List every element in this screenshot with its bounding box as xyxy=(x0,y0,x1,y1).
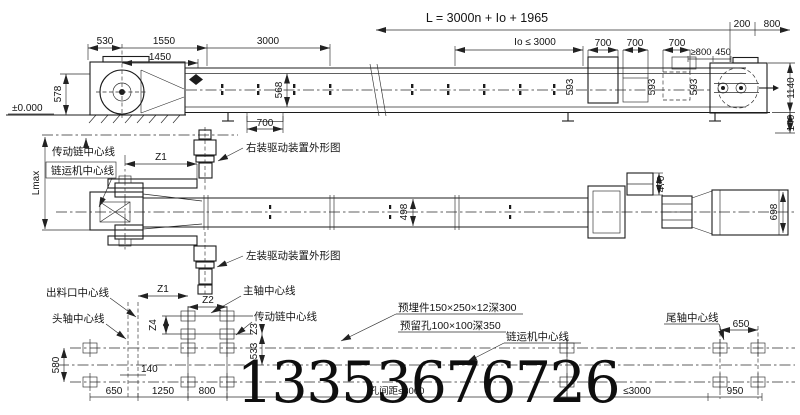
dim-1450: 1450 xyxy=(149,52,172,63)
dim-z1-plan: Z1 xyxy=(155,152,167,163)
dim-498: 498 xyxy=(399,203,410,220)
datum-level: ±0.000 xyxy=(12,103,43,114)
length-formula: L = 3000n + Io + 1965 xyxy=(426,11,548,25)
dim-z4: Z4 xyxy=(148,319,159,331)
label-left-drive: 左装驱动装置外形图 xyxy=(246,249,341,262)
dim-800: 800 xyxy=(764,19,781,30)
dim-z2: Z2 xyxy=(202,295,214,306)
dim-470: 470 xyxy=(656,175,667,192)
label-embedded-part: 预埋件150×250×12深300 xyxy=(398,302,517,314)
dim-700-c: 700 xyxy=(669,38,686,49)
dim-950: 950 xyxy=(727,386,744,397)
dim-700-a: 700 xyxy=(595,38,612,49)
label-outlet-centerline: 出料口中心线 xyxy=(46,286,109,299)
dim-580: 580 xyxy=(51,356,62,373)
label-right-drive: 右装驱动装置外形图 xyxy=(246,141,341,154)
dim-578: 578 xyxy=(53,85,64,102)
dim-z1-foundation: Z1 xyxy=(157,284,169,295)
dim-593-a: 593 xyxy=(565,78,576,95)
dim-450: 450 xyxy=(715,47,731,58)
dim-200: 200 xyxy=(734,19,751,30)
dim-593-b: 593 xyxy=(647,78,658,95)
dim-3000: 3000 xyxy=(257,36,280,47)
dim-le3000: ≤3000 xyxy=(623,386,651,397)
dim-140-foundation: 140 xyxy=(141,364,158,375)
dim-ge800: ≥800 xyxy=(690,47,711,58)
engineering-drawing: 530 1550 1450 3000 L = 3000n + Io + 1965… xyxy=(0,0,800,415)
label-conveyor-centerline-foundation: 链运机中心线 xyxy=(506,330,569,343)
dim-650-right: 650 xyxy=(733,319,750,330)
dim-z3: Z3 xyxy=(249,323,260,335)
dim-1140: 1140 xyxy=(786,77,797,99)
dim-593-c: 593 xyxy=(689,78,700,95)
dim-140-right: 140 xyxy=(786,114,797,131)
label-drive-chain-centerline: 传动链中心线 xyxy=(52,145,115,158)
dim-698: 698 xyxy=(769,203,780,220)
dim-568: 568 xyxy=(274,81,285,98)
dim-1550: 1550 xyxy=(153,36,176,47)
label-drive-chain-centerline-foundation: 传动链中心线 xyxy=(254,310,317,323)
dim-1250: 1250 xyxy=(152,386,175,397)
dim-lmax: Lmax xyxy=(31,171,42,195)
label-conveyor-centerline: 链运机中心线 xyxy=(51,164,114,177)
dim-650-left: 650 xyxy=(106,386,123,397)
dim-800-foundation: 800 xyxy=(199,386,216,397)
drawing-canvas: 530 1550 1450 3000 L = 3000n + Io + 1965… xyxy=(0,0,800,415)
label-head-shaft-centerline: 头轴中心线 xyxy=(52,312,105,325)
dim-io: Io ≤ 3000 xyxy=(514,37,556,48)
label-main-shaft-centerline: 主轴中心线 xyxy=(243,284,296,297)
dim-530: 530 xyxy=(97,36,114,47)
dim-700-b: 700 xyxy=(627,38,644,49)
watermark-phone-number: 13353676726 xyxy=(237,350,619,415)
dim-700-support: 700 xyxy=(257,118,274,129)
label-tail-shaft-centerline: 尾轴中心线 xyxy=(666,311,719,324)
label-reserved-hole: 预留孔100×100深350 xyxy=(400,319,501,332)
